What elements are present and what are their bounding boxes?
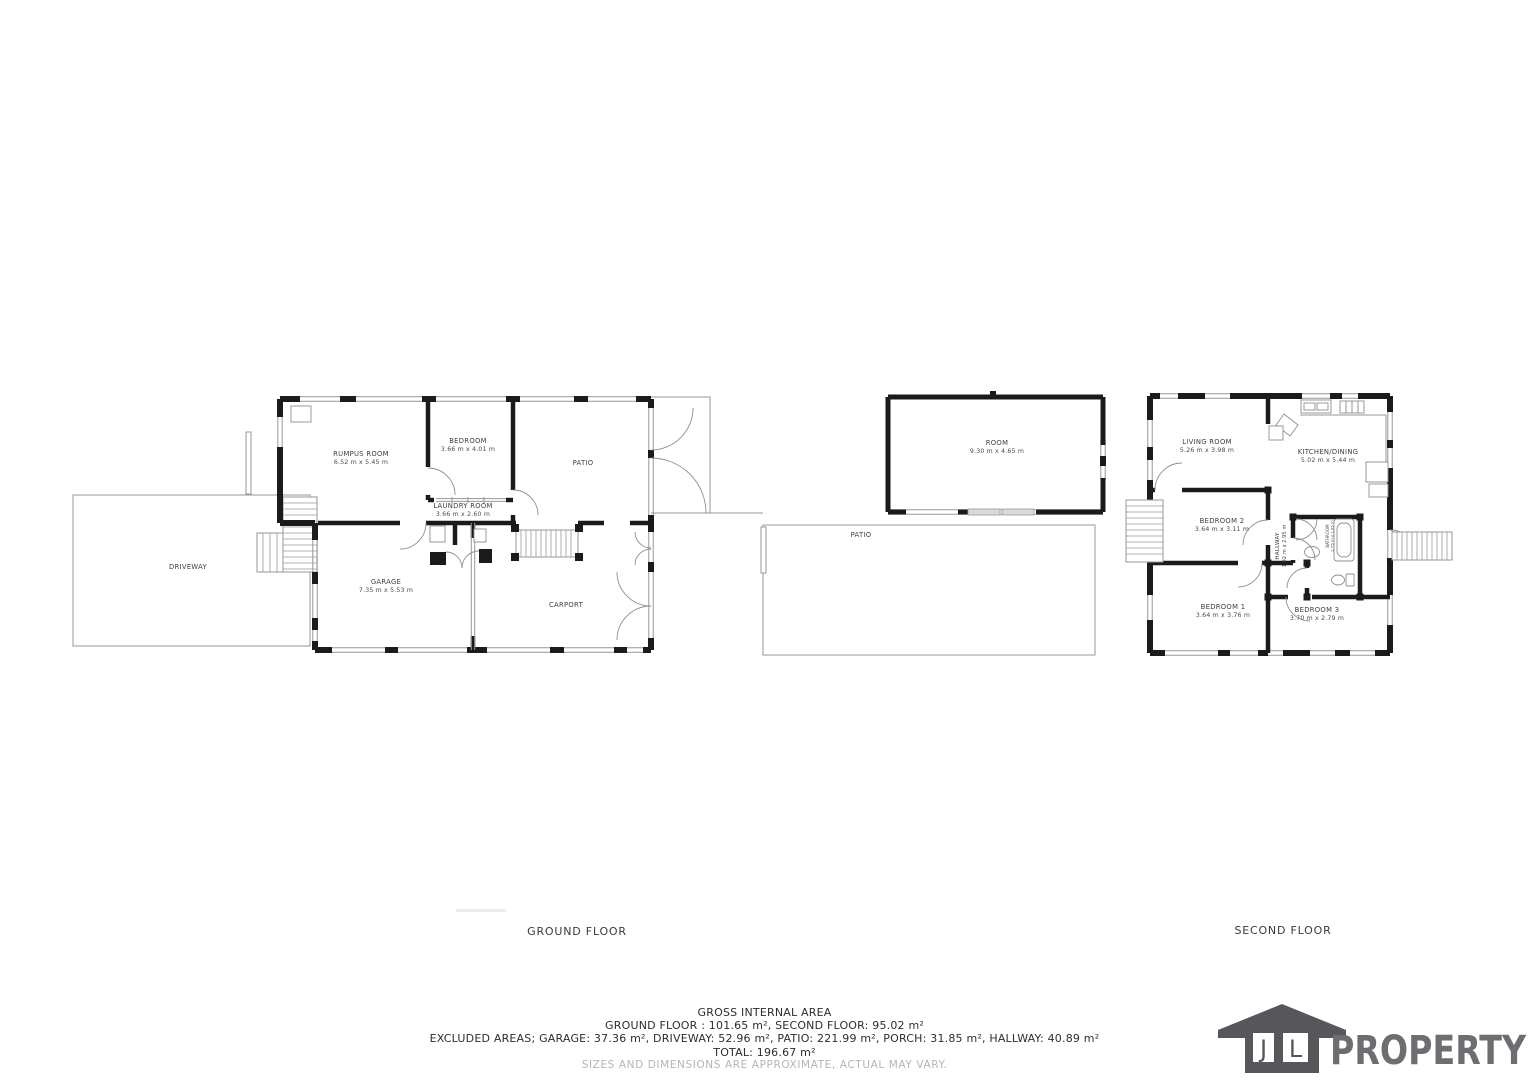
room-dims-room: 9.30 m x 4.65 m — [970, 448, 1024, 455]
porch-outline — [651, 397, 710, 513]
second-floor-plan: LIVING ROOM 5.26 m x 3.98 m KITCHEN/DINI… — [1126, 394, 1452, 655]
room-dims-laundry: 3.66 m x 2.60 m — [436, 511, 490, 518]
room-label-driveway: DRIVEWAY — [169, 563, 207, 571]
exterior-stairs — [1126, 500, 1163, 562]
room-dims-bathroom: 2.75 m x 1.65 m — [1330, 520, 1335, 552]
fireplace — [291, 406, 311, 422]
logo-svg: J L PROPERTY — [1218, 1002, 1529, 1080]
room-label-kitchen: KITCHEN/DINING — [1298, 448, 1359, 456]
laundry-fixtures — [430, 526, 492, 568]
room-label-patio-inner: PATIO — [573, 459, 594, 467]
faint-watermark — [456, 909, 506, 912]
room-dims-bedroom3: 3.70 m x 2.79 m — [1290, 615, 1344, 622]
room-label-carport: CARPORT — [549, 601, 584, 609]
logo-initial-l: L — [1289, 1035, 1303, 1063]
second-floor-title: SECOND FLOOR — [1234, 924, 1331, 937]
patio-edge-detail — [761, 527, 766, 573]
room-label-room: ROOM — [986, 439, 1009, 447]
logo-house-icon — [1218, 1004, 1346, 1073]
room-label-patio-rear: PATIO — [851, 531, 872, 539]
room-label-garage: GARAGE — [371, 578, 401, 586]
room-dims-rumpus: 6.52 m x 5.45 m — [334, 459, 388, 466]
logo-initial-j: J — [1258, 1035, 1267, 1063]
porch-rail — [246, 432, 251, 494]
room-dims-living: 5.26 m x 3.98 m — [1180, 447, 1234, 454]
room-label-bedroom2: BEDROOM 2 — [1200, 517, 1245, 525]
rear-patio-outline — [763, 525, 1095, 655]
room-label-bedroom: BEDROOM — [449, 437, 487, 445]
room-label-bedroom1: BEDROOM 1 — [1201, 603, 1246, 611]
room-dims-bedroom1: 3.64 m x 3.76 m — [1196, 612, 1250, 619]
balcony — [1392, 532, 1452, 560]
room-dims-bedroom: 3.66 m x 4.01 m — [441, 446, 495, 453]
room-label-laundry: LAUNDRY ROOM — [433, 502, 492, 510]
room-dims-bedroom2: 3.64 m x 3.11 m — [1195, 526, 1249, 533]
room-label-rumpus: RUMPUS ROOM — [333, 450, 389, 458]
internal-stairs — [511, 524, 583, 561]
room-dims-garage: 7.35 m x 5.53 m — [359, 587, 413, 594]
logo-brand-text: PROPERTY — [1330, 1028, 1527, 1074]
room-dims-hallway: 1.92 m x 2.95 m — [1282, 525, 1288, 568]
room-dims-kitchen: 5.02 m x 5.44 m — [1301, 457, 1355, 464]
room-label-hallway: HALLWAY — [1275, 532, 1281, 560]
floor-plan-canvas: RUMPUS ROOM 6.52 m x 5.45 m BEDROOM 3.66… — [0, 0, 1529, 1080]
ground-floor-plan: RUMPUS ROOM 6.52 m x 5.45 m BEDROOM 3.66… — [73, 391, 1106, 655]
room-label-living: LIVING ROOM — [1182, 438, 1232, 446]
jl-property-logo: J L PROPERTY — [1218, 1002, 1529, 1080]
ground-floor-title: GROUND FLOOR — [527, 925, 627, 938]
room-label-bedroom3: BEDROOM 3 — [1295, 606, 1340, 614]
